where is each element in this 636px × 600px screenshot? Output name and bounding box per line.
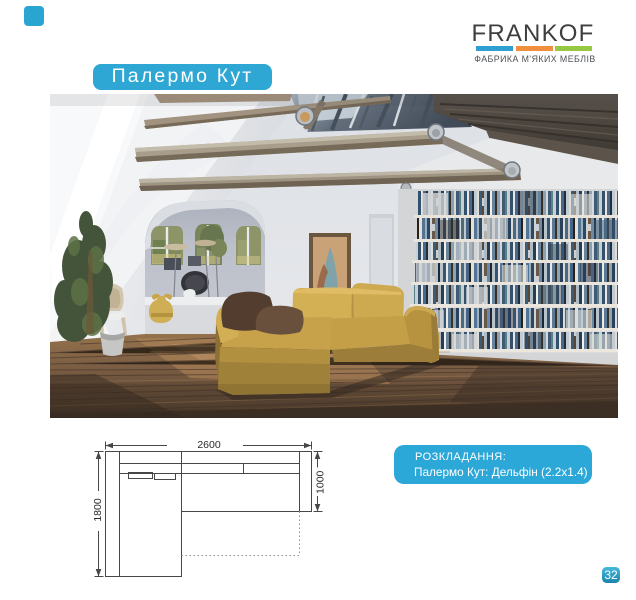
svg-text:1800: 1800 (92, 498, 104, 522)
svg-text:1000: 1000 (314, 470, 326, 494)
svg-text:2600: 2600 (197, 439, 221, 451)
